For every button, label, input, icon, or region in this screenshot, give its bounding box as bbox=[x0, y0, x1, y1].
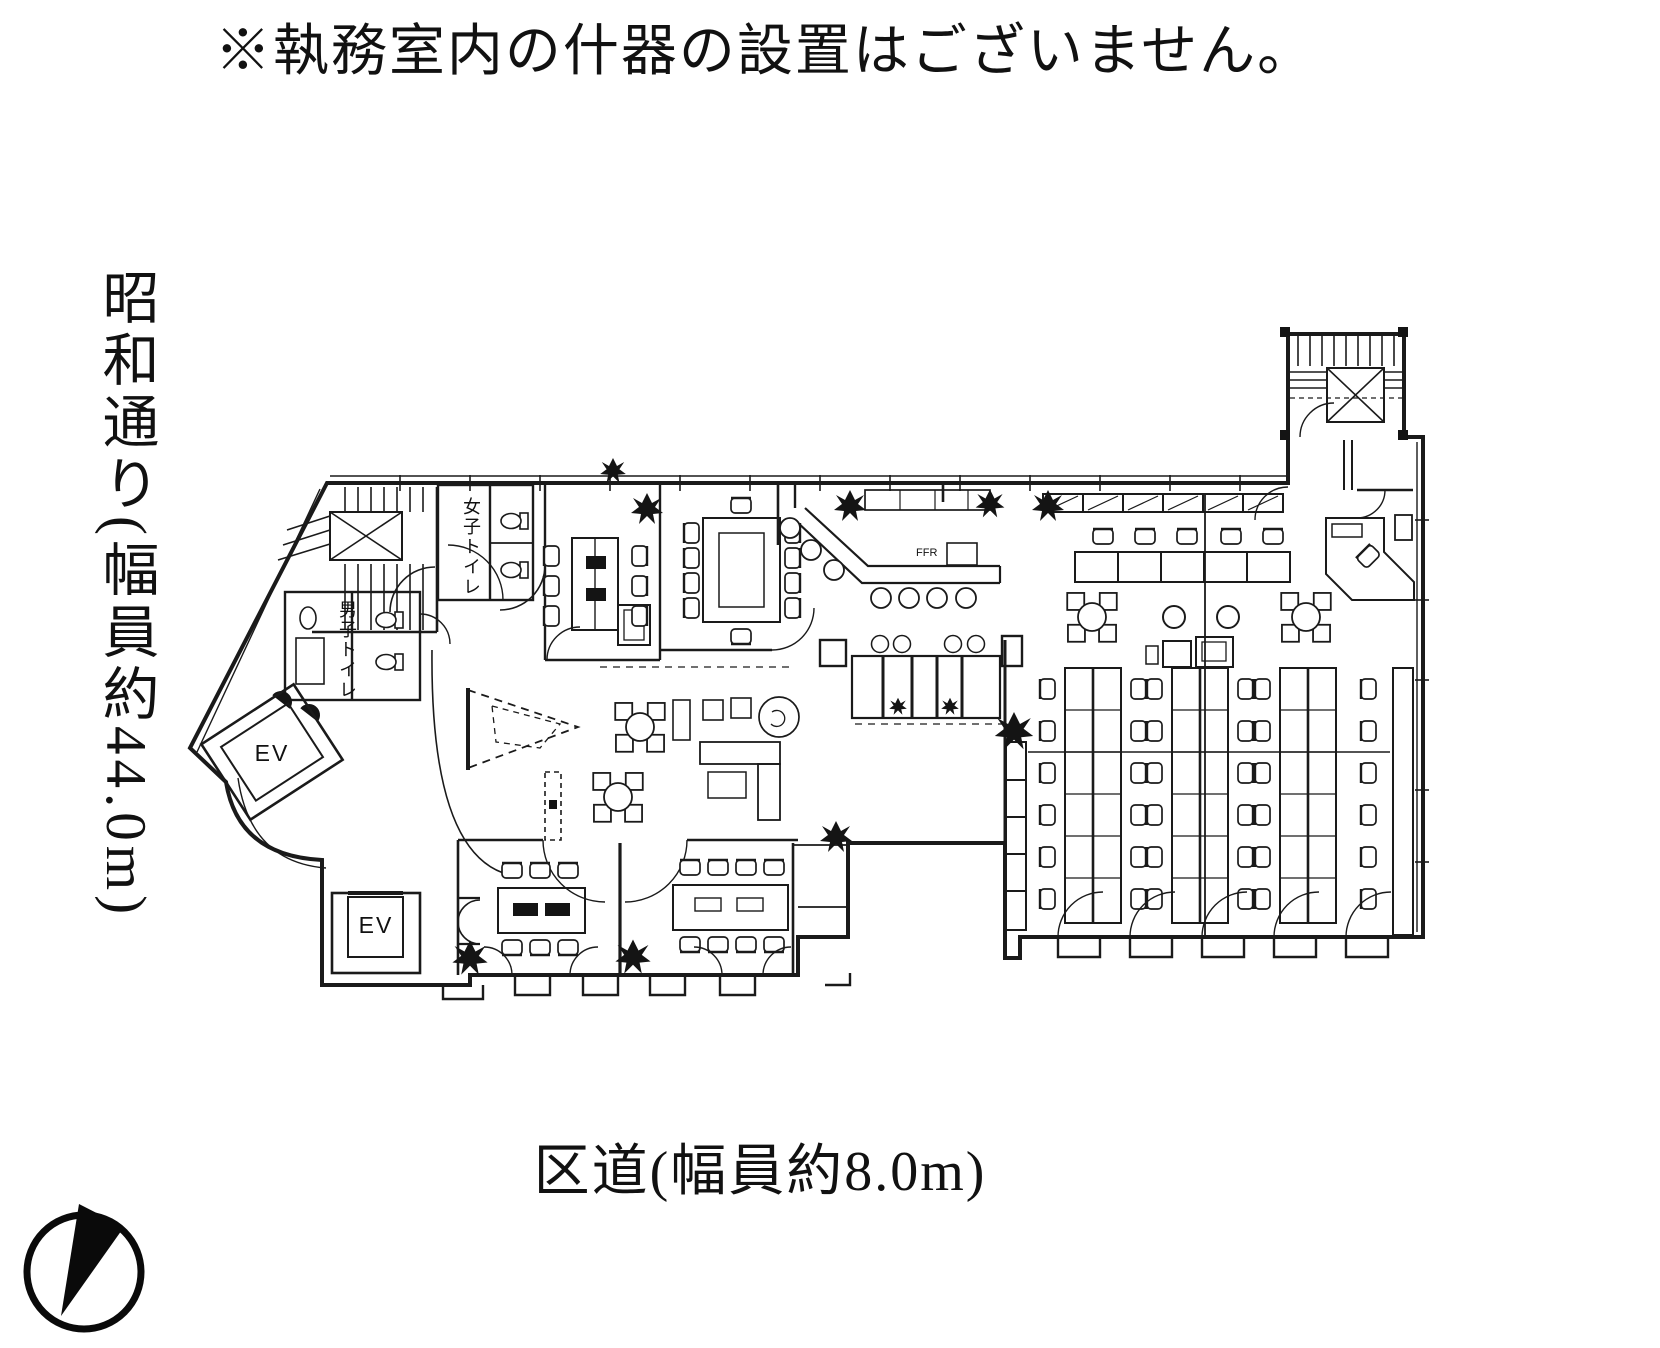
office-area bbox=[1005, 494, 1414, 935]
elevator-lower-label: EV bbox=[352, 912, 400, 939]
floor-plan-page: ※執務室内の什器の設置はございません。 昭和通り(幅員約44.0m) 区道(幅員… bbox=[0, 0, 1660, 1348]
copier-station bbox=[1146, 637, 1233, 667]
elevator-upper-label: EV bbox=[248, 740, 296, 767]
floor-plan-drawing bbox=[0, 0, 1660, 1348]
conference-room bbox=[660, 485, 814, 650]
reception-counter bbox=[778, 485, 1000, 608]
bench-desk-north bbox=[1075, 529, 1290, 582]
mens-toilet-label: 男子トイレ bbox=[334, 600, 360, 700]
lounge-area bbox=[468, 678, 799, 846]
womens-toilet-label: 女子トイレ bbox=[458, 497, 484, 597]
meeting-room-small bbox=[544, 485, 790, 667]
office-desk-rows bbox=[1040, 668, 1391, 937]
exterior-door-recesses bbox=[443, 937, 1388, 999]
locker-row-top bbox=[1043, 494, 1283, 512]
staircase-northeast bbox=[1255, 327, 1413, 520]
meeting-rooms-south bbox=[458, 840, 848, 975]
counter-equipment-label: FFR bbox=[916, 547, 937, 559]
locker-row-left bbox=[1006, 742, 1026, 930]
manager-desk bbox=[1326, 518, 1414, 600]
phone-booths bbox=[820, 636, 1022, 725]
